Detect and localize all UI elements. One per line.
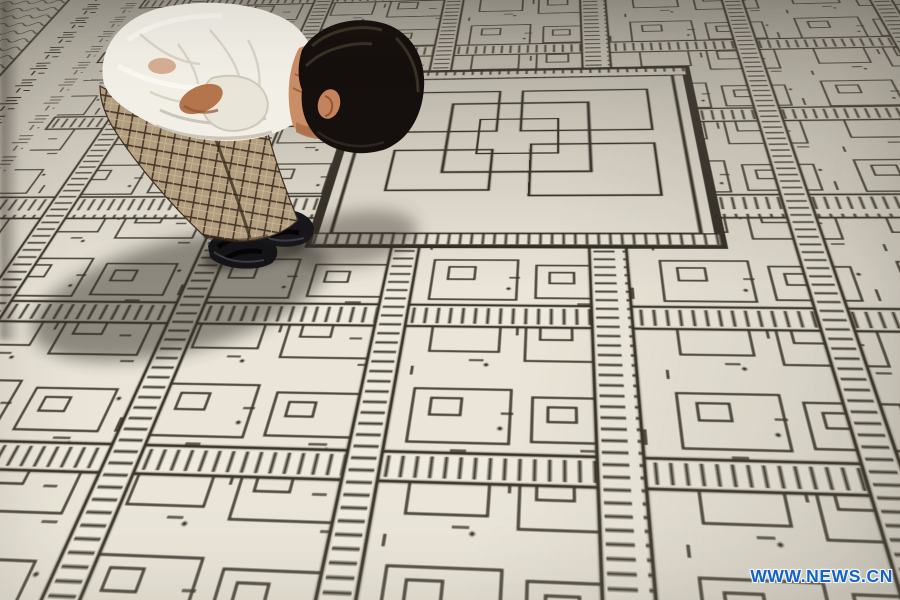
- skin-through-shirt: [148, 58, 176, 74]
- child-head: [289, 20, 425, 153]
- child-figure: [10, 0, 480, 390]
- photo-canvas: WWW.NEWS.CN: [0, 0, 900, 600]
- watermark: WWW.NEWS.CN: [750, 566, 893, 587]
